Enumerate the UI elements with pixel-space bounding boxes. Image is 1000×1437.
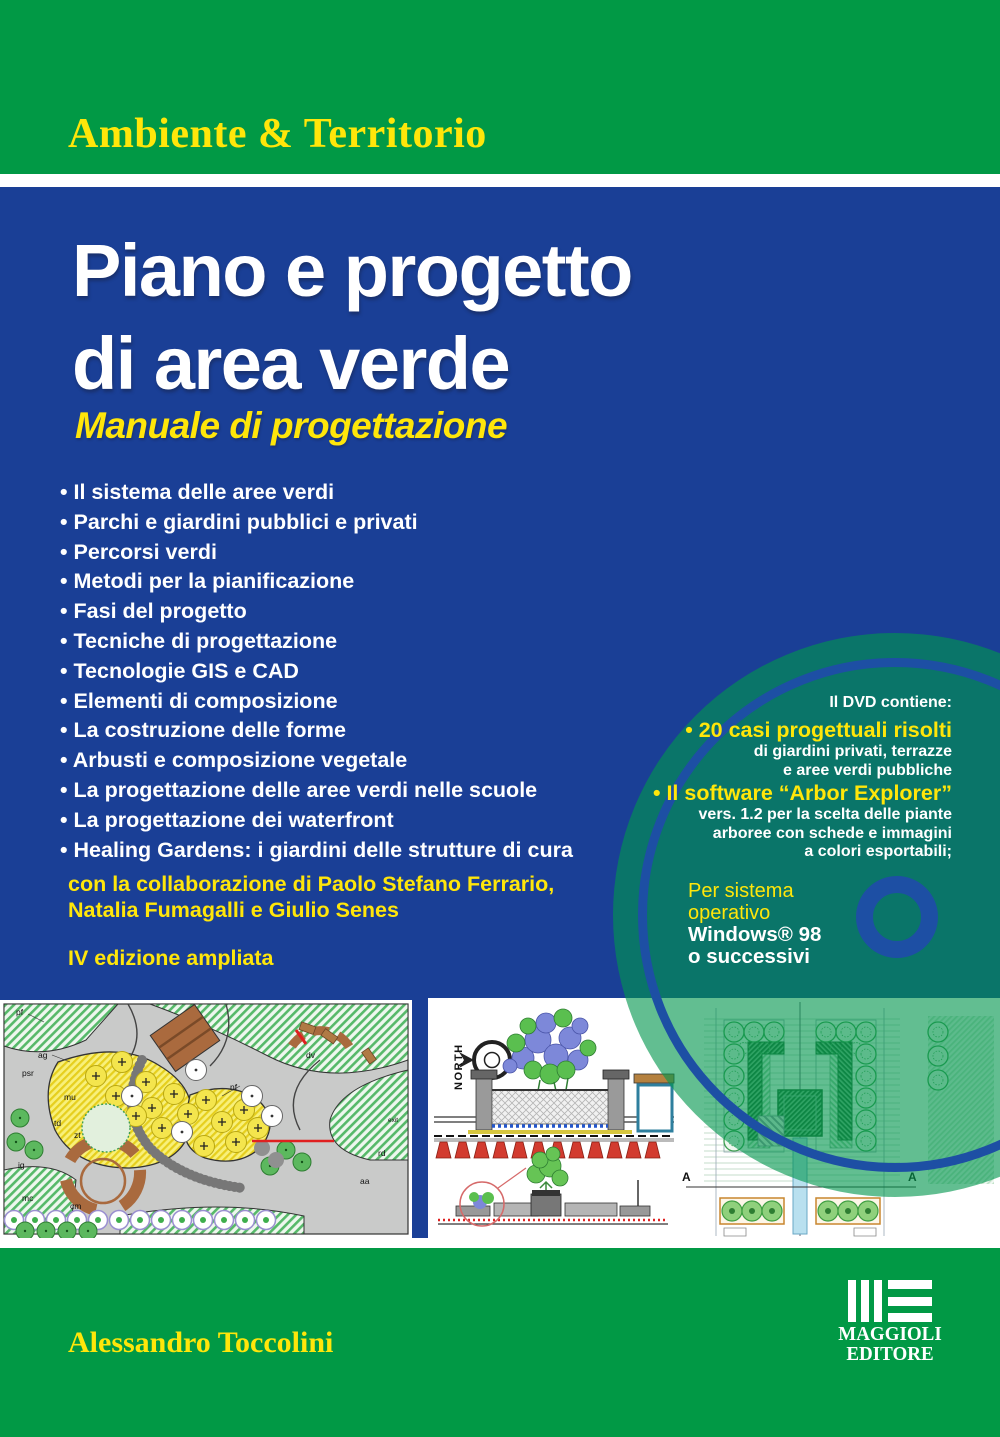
plan-label: rd <box>378 1148 386 1158</box>
author-name: Alessandro Toccolini <box>68 1326 333 1360</box>
plan-label: zt <box>74 1130 81 1140</box>
collaboration-note: con la collaborazione di Paolo Stefano F… <box>68 872 554 923</box>
publisher-name: MAGGIOLI EDITORE <box>838 1324 942 1364</box>
plan-label: exit <box>388 1117 398 1124</box>
os-line1: Per sistema <box>688 880 821 902</box>
topic-item: Metodi per la pianificazione <box>60 567 573 597</box>
dvd-item1-line1: di giardini privati, terrazze <box>653 743 952 762</box>
publisher-name-line2: EDITORE <box>838 1344 942 1364</box>
topic-item: Percorsi verdi <box>60 538 573 568</box>
topic-item: Tecnologie GIS e CAD <box>60 657 573 687</box>
maggioli-logo-icon <box>838 1280 942 1322</box>
publisher-name-line1: MAGGIOLI <box>838 1324 942 1344</box>
series-title: Ambiente & Territorio <box>68 110 487 158</box>
plan-label: mc <box>22 1193 34 1203</box>
plan-label: td <box>54 1118 61 1128</box>
dvd-item2-line1: vers. 1.2 per la scelta delle piante <box>653 806 952 825</box>
topic-item: Parchi e giardini pubblici e privati <box>60 508 573 538</box>
garden-plan-image: pf ag psr mu td zt ig mc cm nf dv rd aa … <box>0 1000 412 1238</box>
dvd-os-requirements: Per sistema operativo Windows® 98 o succ… <box>688 880 821 968</box>
topic-item: La progettazione delle aree verdi nelle … <box>60 776 573 806</box>
plan-label: psr <box>22 1068 34 1078</box>
compass-label: NORTH <box>453 1043 465 1090</box>
book-cover: Ambiente & Territorio Piano e progetto d… <box>0 0 1000 1437</box>
os-line3: Windows® 98 <box>688 924 821 946</box>
plan-label: ag <box>38 1050 48 1060</box>
plan-label: cm <box>70 1201 81 1211</box>
publisher-logo: MAGGIOLI EDITORE <box>838 1280 942 1363</box>
plan-label: nf <box>230 1082 238 1092</box>
dvd-hub-icon <box>856 876 938 958</box>
plan-label: ig <box>18 1160 25 1170</box>
dvd-heading: Il DVD contiene: <box>653 694 952 712</box>
topic-item: Tecniche di progettazione <box>60 627 573 657</box>
os-line4: o successivi <box>688 946 821 968</box>
topic-item: Healing Gardens: i giardini delle strutt… <box>60 836 573 866</box>
book-subtitle: Manuale di progettazione <box>75 405 507 447</box>
topic-item: La progettazione dei waterfront <box>60 806 573 836</box>
plan-label: aa <box>360 1176 370 1186</box>
plan-label: pf <box>16 1007 24 1017</box>
os-line2: operativo <box>688 902 821 924</box>
dvd-item2-title: • Il software “Arbor Explorer” <box>653 780 952 806</box>
logo-horizontal-bars <box>888 1280 932 1322</box>
edition-note: IV edizione ampliata <box>68 946 274 971</box>
section-mark-left: A <box>682 1170 691 1184</box>
collaboration-line1: con la collaborazione di Paolo Stefano F… <box>68 872 554 898</box>
dvd-item2-line2: arboree con schede e immagini <box>653 825 952 844</box>
book-title-line1: Piano e progetto <box>72 224 632 317</box>
dvd-item2-line3: a colori esportabili; <box>653 843 952 862</box>
topic-item: Fasi del progetto <box>60 597 573 627</box>
plan-label: mu <box>64 1092 76 1102</box>
series-band: Ambiente & Territorio <box>0 0 1000 174</box>
topic-item: Arbusti e composizione vegetale <box>60 746 573 776</box>
topic-item: La costruzione delle forme <box>60 716 573 746</box>
garden-plan-graphics <box>0 1000 412 1238</box>
logo-vertical-bars <box>848 1280 882 1322</box>
dvd-item1-line2: e aree verdi pubbliche <box>653 762 952 781</box>
book-title-line2: di area verde <box>72 317 632 410</box>
roof-section-graphics: NORTH <box>434 1009 674 1226</box>
topic-item: Il sistema delle aree verdi <box>60 478 573 508</box>
dvd-item1-title: • 20 casi progettuali risolti <box>653 717 952 743</box>
topic-item: Elementi di composizione <box>60 687 573 717</box>
book-title: Piano e progetto di area verde <box>72 224 632 410</box>
plan-label: dv <box>306 1050 316 1060</box>
topics-list: Il sistema delle aree verdi Parchi e gia… <box>60 478 573 865</box>
dvd-contents: Il DVD contiene: • 20 casi progettuali r… <box>653 694 952 862</box>
collaboration-line2: Natalia Fumagalli e Giulio Senes <box>68 898 554 924</box>
